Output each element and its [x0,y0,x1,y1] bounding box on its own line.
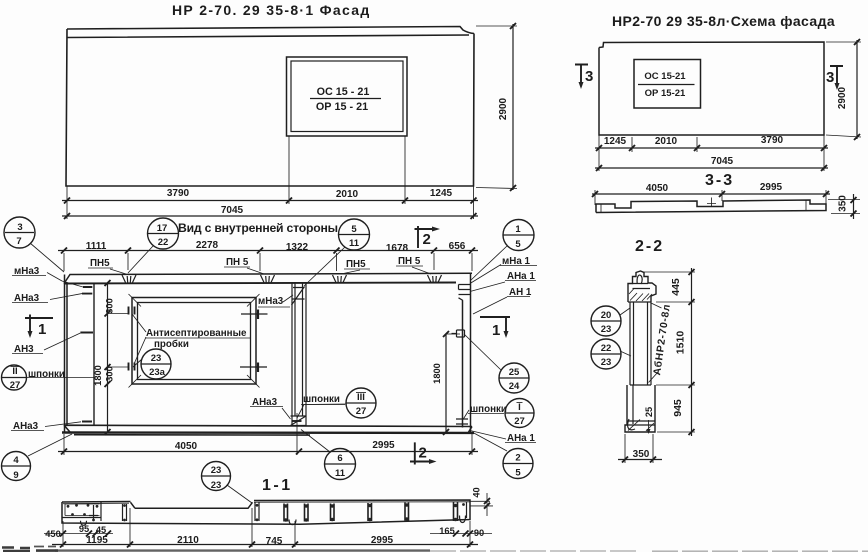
svg-text:20: 20 [601,310,612,321]
svg-text:2010: 2010 [655,136,678,147]
svg-text:2900: 2900 [498,97,509,120]
svg-text:3-3: 3-3 [705,172,734,189]
svg-text:2: 2 [423,231,431,248]
svg-text:II: II [12,366,17,377]
svg-text:2-2: 2-2 [635,238,664,255]
svg-text:23: 23 [211,480,222,491]
svg-text:2: 2 [515,453,520,464]
svg-text:350: 350 [838,195,849,212]
svg-text:мНа3: мНа3 [258,296,284,307]
svg-text:1678: 1678 [386,243,409,254]
svg-text:1: 1 [492,322,500,339]
svg-text:1800: 1800 [432,363,442,384]
svg-text:ПН5: ПН5 [90,258,110,269]
svg-text:3790: 3790 [761,135,784,146]
svg-text:6: 6 [337,453,342,464]
svg-text:22: 22 [601,343,612,354]
svg-text:3: 3 [585,68,593,85]
svg-text:Антисептированные: Антисептированные [146,328,247,339]
svg-text:АбНР2-70-8л: АбНР2-70-8л [651,303,673,376]
svg-text:7045: 7045 [711,156,734,167]
svg-text:2: 2 [419,445,427,462]
svg-text:27: 27 [514,416,525,427]
svg-text:2995: 2995 [760,182,783,193]
svg-text:1111: 1111 [86,241,107,252]
svg-text:45: 45 [96,525,106,535]
svg-text:1: 1 [38,321,46,338]
svg-text:4: 4 [13,455,19,466]
svg-text:17: 17 [157,223,168,234]
svg-text:450: 450 [45,529,61,539]
svg-text:945: 945 [672,399,684,417]
svg-text:4050: 4050 [646,183,669,194]
svg-text:НР 2-70. 29 35-8·1 Фасад: НР 2-70. 29 35-8·1 Фасад [172,2,371,18]
svg-text:350: 350 [633,449,650,460]
svg-text:шпонки: шпонки [28,369,65,380]
svg-text:III: III [357,392,365,403]
svg-text:ПН5: ПН5 [346,259,366,270]
svg-text:3: 3 [826,69,834,86]
svg-text:1245: 1245 [430,188,453,199]
svg-text:1800: 1800 [93,365,103,386]
svg-text:23: 23 [601,357,612,368]
svg-text:5: 5 [351,224,357,235]
svg-text:I: I [518,402,521,413]
svg-text:2110: 2110 [177,535,199,546]
svg-text:2900: 2900 [837,86,848,109]
svg-text:2995: 2995 [372,440,395,451]
svg-text:пробки: пробки [154,339,189,350]
svg-text:23: 23 [151,353,162,364]
svg-text:23: 23 [601,324,612,335]
svg-text:11: 11 [335,468,346,479]
svg-text:1-1: 1-1 [262,477,293,494]
svg-text:1322: 1322 [286,242,309,253]
svg-text:165: 165 [439,526,455,536]
svg-text:3790: 3790 [167,188,190,199]
svg-text:27: 27 [356,406,367,417]
svg-text:шпонки: шпонки [303,394,340,405]
svg-text:23а: 23а [149,367,166,378]
svg-text:ПН 5: ПН 5 [226,257,249,268]
svg-text:ОС 15-21: ОС 15-21 [644,71,686,82]
svg-text:90: 90 [474,528,484,538]
svg-text:656: 656 [449,241,466,252]
svg-text:24: 24 [509,381,520,392]
svg-text:2278: 2278 [196,240,219,251]
svg-text:25: 25 [644,407,654,417]
svg-text:300: 300 [105,298,115,314]
svg-text:9: 9 [13,470,18,481]
svg-text:7: 7 [16,236,21,247]
svg-text:2995: 2995 [371,535,394,546]
svg-text:1510: 1510 [675,331,687,355]
svg-text:40: 40 [472,487,482,497]
svg-text:ПН 5: ПН 5 [398,256,421,267]
svg-text:НР2-70 29 35-8л·Схема фасада: НР2-70 29 35-8л·Схема фасада [612,13,835,29]
svg-text:23: 23 [211,465,222,476]
svg-text:7045: 7045 [221,205,244,216]
svg-text:5: 5 [515,468,521,479]
svg-text:445: 445 [670,278,682,296]
svg-text:1195: 1195 [86,535,108,546]
svg-text:300: 300 [105,366,115,382]
svg-text:ОР 15-21: ОР 15-21 [645,88,686,99]
svg-text:Вид с внутренней стороны: Вид с внутренней стороны [178,221,338,235]
svg-text:ОС 15 - 21: ОС 15 - 21 [317,86,370,98]
svg-text:1: 1 [515,224,521,235]
svg-text:2010: 2010 [336,189,359,200]
svg-text:95: 95 [79,524,89,534]
svg-text:5: 5 [515,239,521,250]
svg-text:ОР 15 - 21: ОР 15 - 21 [316,101,368,113]
svg-text:1245: 1245 [604,136,627,147]
svg-text:3: 3 [17,222,22,233]
svg-text:27: 27 [10,380,21,391]
svg-text:11: 11 [349,238,360,249]
svg-text:4050: 4050 [175,441,198,452]
svg-text:22: 22 [158,237,169,248]
svg-text:25: 25 [509,367,520,378]
svg-text:745: 745 [266,536,283,547]
